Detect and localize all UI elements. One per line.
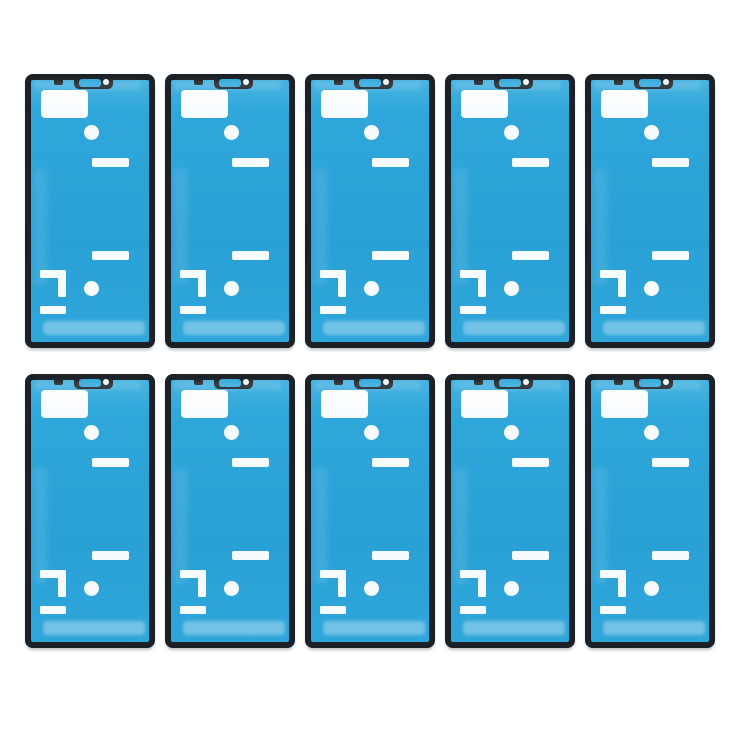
sensor-area-cutout <box>321 390 368 418</box>
home-button-hole-cutout <box>644 281 659 296</box>
adhesive-sheen-left <box>454 469 467 584</box>
adhesive-sheen-left <box>454 169 467 284</box>
front-housing-adhesive-sticker-7 <box>165 374 295 648</box>
top-alignment-notch <box>194 80 203 85</box>
adhesive-sheen-left <box>34 469 47 584</box>
front-housing-adhesive-sticker-3 <box>305 74 435 348</box>
earpiece-tab-cutline <box>354 374 393 389</box>
adhesive-sheen-bottom <box>463 621 565 635</box>
lower-slot-cutout <box>372 551 409 560</box>
lower-slot-cutout <box>652 551 689 560</box>
adhesive-sheen-left <box>314 469 327 584</box>
proximity-sensor-hole <box>383 379 389 385</box>
proximity-sensor-hole <box>103 379 109 385</box>
top-alignment-notch <box>614 80 623 85</box>
bracket-cutout-bottom <box>600 606 626 614</box>
front-housing-adhesive-sticker-6 <box>25 374 155 648</box>
bracket-cutout-bottom <box>180 606 206 614</box>
proximity-sensor-hole <box>103 79 109 85</box>
home-button-hole-cutout <box>504 581 519 596</box>
front-camera-hole-cutout <box>224 125 239 140</box>
sensor-area-cutout <box>601 390 648 418</box>
home-button-hole-cutout <box>224 581 239 596</box>
earpiece-tab-cutline <box>74 74 113 89</box>
earpiece-tab-cutline <box>634 74 673 89</box>
upper-slot-cutout <box>92 158 129 167</box>
top-alignment-notch <box>474 380 483 385</box>
adhesive-sheen-bottom <box>43 621 145 635</box>
proximity-sensor-hole <box>663 379 669 385</box>
earpiece-window <box>499 379 521 387</box>
lower-slot-cutout <box>512 251 549 260</box>
lower-slot-cutout <box>372 251 409 260</box>
adhesive-sheen-left <box>594 469 607 584</box>
proximity-sensor-hole <box>243 379 249 385</box>
front-camera-hole-cutout <box>644 125 659 140</box>
lower-slot-cutout <box>92 251 129 260</box>
sensor-area-cutout <box>461 390 508 418</box>
earpiece-tab-cutline <box>74 374 113 389</box>
bracket-cutout-side <box>618 570 626 597</box>
bracket-cutout-side <box>618 270 626 297</box>
front-housing-adhesive-sticker-10 <box>585 374 715 648</box>
front-housing-adhesive-sticker-4 <box>445 74 575 348</box>
adhesive-sheen-bottom <box>463 321 565 335</box>
bracket-cutout-side <box>478 570 486 597</box>
front-housing-adhesive-sticker-5 <box>585 74 715 348</box>
front-camera-hole-cutout <box>504 425 519 440</box>
adhesive-sheen-left <box>174 169 187 284</box>
product-photo-canvas <box>0 0 750 750</box>
sensor-area-cutout <box>181 90 228 118</box>
front-camera-hole-cutout <box>224 425 239 440</box>
adhesive-sheen-bottom <box>183 321 285 335</box>
sensor-area-cutout <box>601 90 648 118</box>
bracket-cutout-side <box>478 270 486 297</box>
sticker-grid <box>25 74 715 648</box>
lower-slot-cutout <box>232 251 269 260</box>
adhesive-sheen-left <box>314 169 327 284</box>
home-button-hole-cutout <box>364 581 379 596</box>
bracket-cutout-side <box>338 270 346 297</box>
adhesive-sheen-bottom <box>323 621 425 635</box>
top-alignment-notch <box>474 80 483 85</box>
sensor-area-cutout <box>321 90 368 118</box>
adhesive-sheen-bottom <box>43 321 145 335</box>
proximity-sensor-hole <box>523 79 529 85</box>
front-camera-hole-cutout <box>504 125 519 140</box>
home-button-hole-cutout <box>644 581 659 596</box>
lower-slot-cutout <box>512 551 549 560</box>
lower-slot-cutout <box>652 251 689 260</box>
adhesive-sheen-left <box>174 469 187 584</box>
lower-slot-cutout <box>92 551 129 560</box>
top-alignment-notch <box>334 380 343 385</box>
bracket-cutout-side <box>338 570 346 597</box>
earpiece-window <box>359 79 381 87</box>
earpiece-window <box>639 379 661 387</box>
upper-slot-cutout <box>372 458 409 467</box>
earpiece-window <box>79 379 101 387</box>
earpiece-window <box>639 79 661 87</box>
top-alignment-notch <box>54 380 63 385</box>
front-housing-adhesive-sticker-9 <box>445 374 575 648</box>
top-alignment-notch <box>194 380 203 385</box>
upper-slot-cutout <box>652 458 689 467</box>
adhesive-sheen-left <box>34 169 47 284</box>
proximity-sensor-hole <box>383 79 389 85</box>
earpiece-tab-cutline <box>214 74 253 89</box>
upper-slot-cutout <box>232 158 269 167</box>
bracket-cutout-bottom <box>600 306 626 314</box>
home-button-hole-cutout <box>364 281 379 296</box>
earpiece-window <box>219 379 241 387</box>
bracket-cutout-side <box>58 570 66 597</box>
upper-slot-cutout <box>512 458 549 467</box>
earpiece-window <box>499 79 521 87</box>
upper-slot-cutout <box>372 158 409 167</box>
lower-slot-cutout <box>232 551 269 560</box>
front-camera-hole-cutout <box>84 125 99 140</box>
home-button-hole-cutout <box>84 581 99 596</box>
front-housing-adhesive-sticker-8 <box>305 374 435 648</box>
bracket-cutout-bottom <box>320 606 346 614</box>
upper-slot-cutout <box>512 158 549 167</box>
adhesive-sheen-bottom <box>323 321 425 335</box>
earpiece-tab-cutline <box>494 374 533 389</box>
earpiece-tab-cutline <box>634 374 673 389</box>
top-alignment-notch <box>334 80 343 85</box>
adhesive-sheen-bottom <box>603 621 705 635</box>
adhesive-sheen-bottom <box>603 321 705 335</box>
front-camera-hole-cutout <box>84 425 99 440</box>
top-alignment-notch <box>54 80 63 85</box>
proximity-sensor-hole <box>523 379 529 385</box>
front-camera-hole-cutout <box>644 425 659 440</box>
adhesive-sheen-left <box>594 169 607 284</box>
top-alignment-notch <box>614 380 623 385</box>
earpiece-tab-cutline <box>354 74 393 89</box>
proximity-sensor-hole <box>243 79 249 85</box>
upper-slot-cutout <box>652 158 689 167</box>
bracket-cutout-bottom <box>320 306 346 314</box>
earpiece-window <box>359 379 381 387</box>
home-button-hole-cutout <box>504 281 519 296</box>
home-button-hole-cutout <box>224 281 239 296</box>
earpiece-window <box>79 79 101 87</box>
home-button-hole-cutout <box>84 281 99 296</box>
bracket-cutout-side <box>58 270 66 297</box>
proximity-sensor-hole <box>663 79 669 85</box>
earpiece-window <box>219 79 241 87</box>
earpiece-tab-cutline <box>214 374 253 389</box>
earpiece-tab-cutline <box>494 74 533 89</box>
sensor-area-cutout <box>181 390 228 418</box>
bracket-cutout-side <box>198 570 206 597</box>
sensor-area-cutout <box>41 90 88 118</box>
bracket-cutout-bottom <box>180 306 206 314</box>
bracket-cutout-side <box>198 270 206 297</box>
adhesive-sheen-bottom <box>183 621 285 635</box>
bracket-cutout-bottom <box>460 306 486 314</box>
bracket-cutout-bottom <box>40 606 66 614</box>
front-housing-adhesive-sticker-2 <box>165 74 295 348</box>
upper-slot-cutout <box>232 458 269 467</box>
sensor-area-cutout <box>41 390 88 418</box>
front-camera-hole-cutout <box>364 125 379 140</box>
upper-slot-cutout <box>92 458 129 467</box>
front-camera-hole-cutout <box>364 425 379 440</box>
front-housing-adhesive-sticker-1 <box>25 74 155 348</box>
sensor-area-cutout <box>461 90 508 118</box>
bracket-cutout-bottom <box>40 306 66 314</box>
bracket-cutout-bottom <box>460 606 486 614</box>
